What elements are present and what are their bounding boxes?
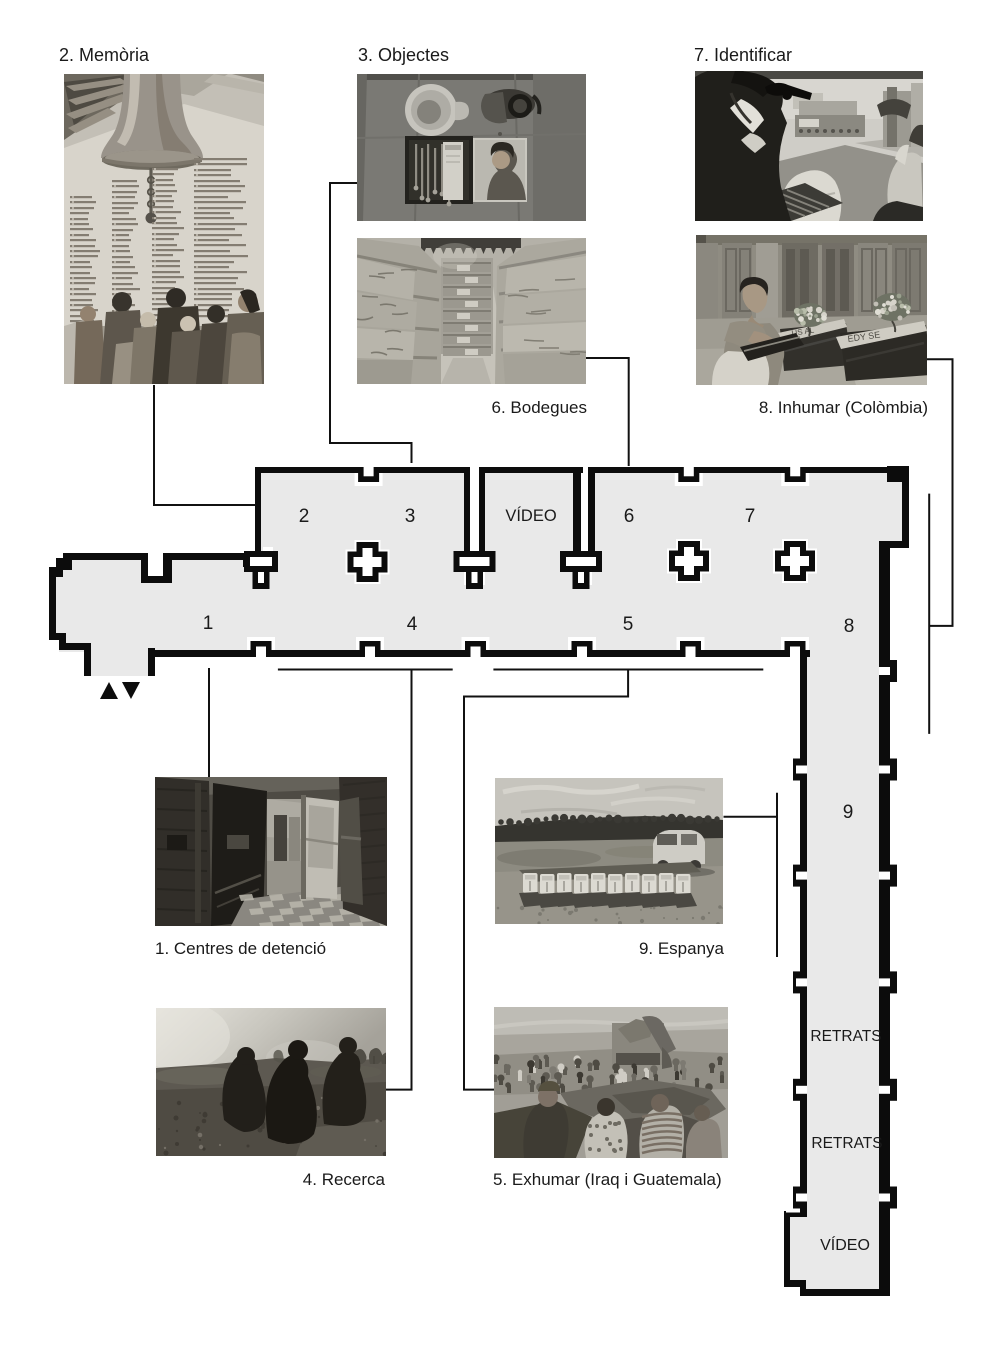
svg-text:9: 9	[843, 802, 854, 823]
svg-text:8. Inhumar (Colòmbia): 8. Inhumar (Colòmbia)	[759, 398, 928, 417]
svg-text:3. Objectes: 3. Objectes	[358, 45, 449, 65]
svg-text:1. Centres de detenció: 1. Centres de detenció	[155, 939, 326, 958]
svg-text:9. Espanya: 9. Espanya	[639, 939, 725, 958]
svg-text:RETRATS: RETRATS	[811, 1135, 882, 1152]
svg-text:7: 7	[745, 506, 756, 527]
svg-text:4: 4	[407, 614, 418, 635]
svg-text:4. Recerca: 4. Recerca	[303, 1170, 386, 1189]
svg-text:8: 8	[844, 616, 855, 637]
svg-text:5: 5	[623, 614, 634, 635]
svg-text:7. Identificar: 7. Identificar	[694, 45, 792, 65]
svg-text:3: 3	[405, 506, 416, 527]
svg-text:6. Bodegues: 6. Bodegues	[492, 398, 587, 417]
svg-text:RETRATS: RETRATS	[810, 1028, 881, 1045]
svg-text:1: 1	[203, 613, 214, 634]
svg-text:2. Memòria: 2. Memòria	[59, 45, 150, 65]
svg-text:5. Exhumar (Iraq i Guatemala): 5. Exhumar (Iraq i Guatemala)	[493, 1170, 722, 1189]
svg-text:VÍDEO: VÍDEO	[505, 506, 557, 525]
svg-text:VÍDEO: VÍDEO	[820, 1235, 870, 1254]
svg-text:2: 2	[299, 506, 310, 527]
svg-text:6: 6	[624, 506, 635, 527]
